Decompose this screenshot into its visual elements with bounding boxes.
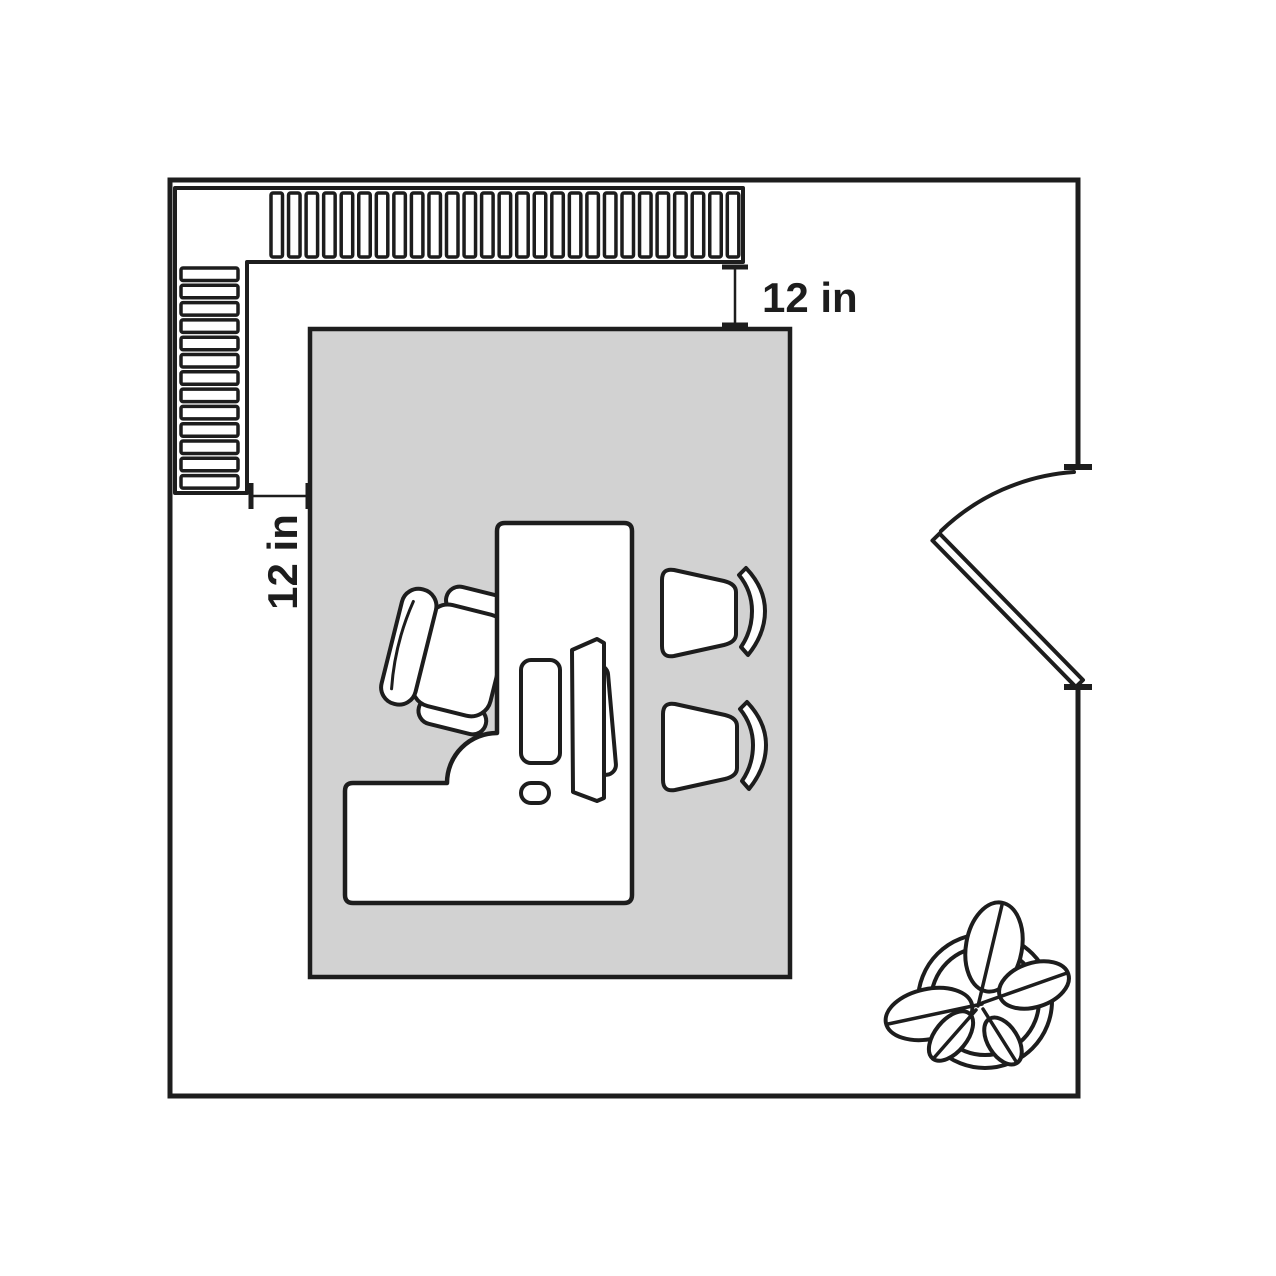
shelf-slat bbox=[727, 193, 739, 257]
shelf-slat bbox=[181, 441, 238, 454]
shelf-slat bbox=[569, 193, 581, 257]
keyboard bbox=[521, 660, 560, 763]
shelf-slat bbox=[499, 193, 511, 257]
monitor bbox=[572, 639, 604, 801]
shelf-slat bbox=[181, 476, 238, 489]
shelf-slat bbox=[324, 193, 336, 257]
shelf-slat bbox=[181, 458, 238, 471]
dimension-left-clearance: 12 in bbox=[251, 483, 308, 610]
shelf-slat bbox=[181, 355, 238, 368]
bookshelf-left-slats bbox=[181, 268, 238, 488]
shelf-slat bbox=[341, 193, 353, 257]
shelf-slat bbox=[181, 424, 238, 437]
mouse bbox=[521, 783, 549, 803]
shelf-slat bbox=[359, 193, 371, 257]
shelf-slat bbox=[710, 193, 722, 257]
dimension-top-clearance: 12 in bbox=[722, 267, 858, 325]
shelf-slat bbox=[181, 389, 238, 402]
shelf-slat bbox=[411, 193, 423, 257]
shelf-slat bbox=[657, 193, 669, 257]
door-swing-arc bbox=[941, 472, 1074, 531]
door-leaf bbox=[932, 534, 1083, 687]
shelf-slat bbox=[517, 193, 529, 257]
shelf-slat bbox=[181, 406, 238, 419]
shelf-slat bbox=[692, 193, 704, 257]
shelf-slat bbox=[181, 268, 238, 281]
floor-plan-stage: 12 in 12 in bbox=[0, 0, 1276, 1276]
shelf-slat bbox=[181, 285, 238, 298]
shelf-slat bbox=[464, 193, 476, 257]
shelf-slat bbox=[181, 320, 238, 333]
shelf-slat bbox=[376, 193, 388, 257]
shelf-slat bbox=[394, 193, 406, 257]
shelf-slat bbox=[640, 193, 652, 257]
shelf-slat bbox=[181, 372, 238, 385]
shelf-slat bbox=[675, 193, 687, 257]
guest-chair-seat bbox=[663, 704, 737, 791]
office-floor-plan: 12 in 12 in bbox=[0, 0, 1276, 1276]
shelf-slat bbox=[289, 193, 301, 257]
door bbox=[932, 472, 1083, 687]
shelf-slat bbox=[482, 193, 494, 257]
shelf-slat bbox=[306, 193, 318, 257]
shelf-slat bbox=[271, 193, 283, 257]
guest-chair-seat bbox=[662, 570, 736, 657]
left-clearance-label: 12 in bbox=[259, 514, 306, 610]
shelf-slat bbox=[552, 193, 564, 257]
shelf-slat bbox=[622, 193, 634, 257]
top-clearance-label: 12 in bbox=[762, 274, 858, 321]
shelf-slat bbox=[429, 193, 441, 257]
shelf-slat bbox=[604, 193, 616, 257]
shelf-slat bbox=[447, 193, 459, 257]
shelf-slat bbox=[181, 303, 238, 316]
shelf-slat bbox=[587, 193, 599, 257]
shelf-slat bbox=[534, 193, 546, 257]
bookshelf-top-slats bbox=[271, 193, 739, 257]
shelf-slat bbox=[181, 337, 238, 350]
potted-plant bbox=[881, 898, 1075, 1071]
